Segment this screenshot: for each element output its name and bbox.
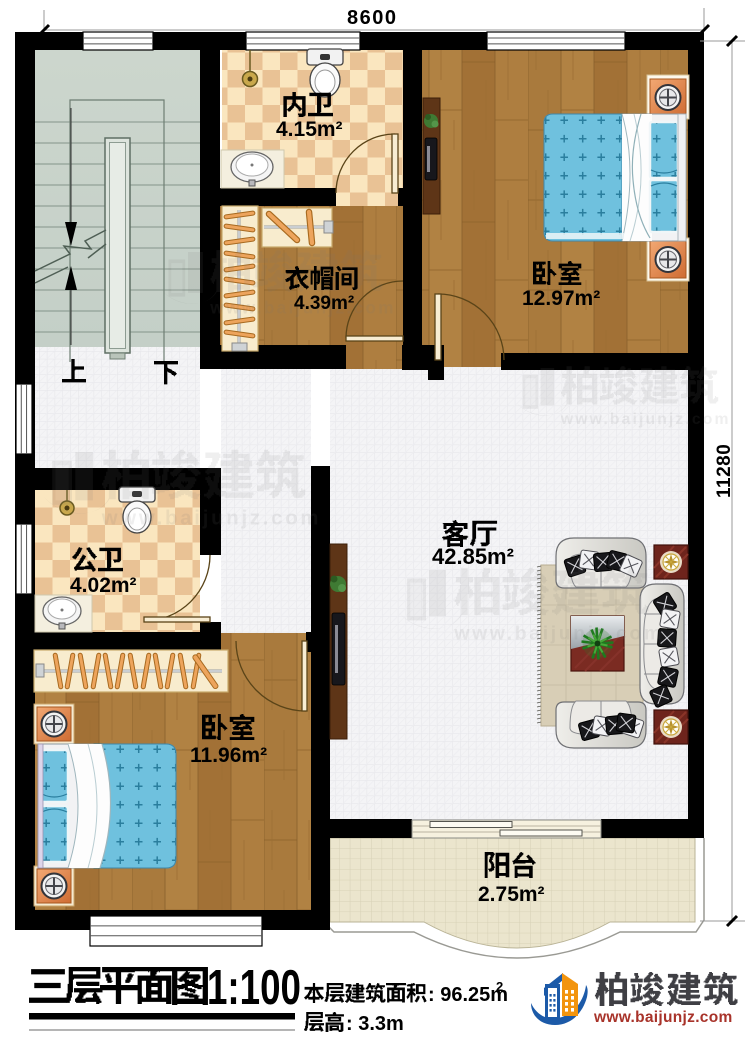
svg-text:11.96m²: 11.96m² (190, 744, 267, 767)
svg-text:8600: 8600 (347, 7, 398, 29)
svg-text:: 3.3m: : 3.3m (346, 1013, 404, 1035)
svg-text:42.85m²: 42.85m² (432, 544, 514, 569)
svg-text:4.15m²: 4.15m² (276, 118, 343, 141)
svg-text:4.02m²: 4.02m² (70, 574, 137, 597)
svg-text:1:100: 1:100 (207, 961, 301, 1015)
svg-text:11280: 11280 (714, 444, 735, 498)
svg-text:12.97m²: 12.97m² (522, 287, 600, 310)
svg-text:4.39m²: 4.39m² (294, 293, 354, 314)
svg-text:2.75m²: 2.75m² (478, 883, 545, 906)
svg-text:www.baijunjz.com: www.baijunjz.com (593, 1009, 733, 1026)
svg-text:2: 2 (496, 979, 503, 994)
